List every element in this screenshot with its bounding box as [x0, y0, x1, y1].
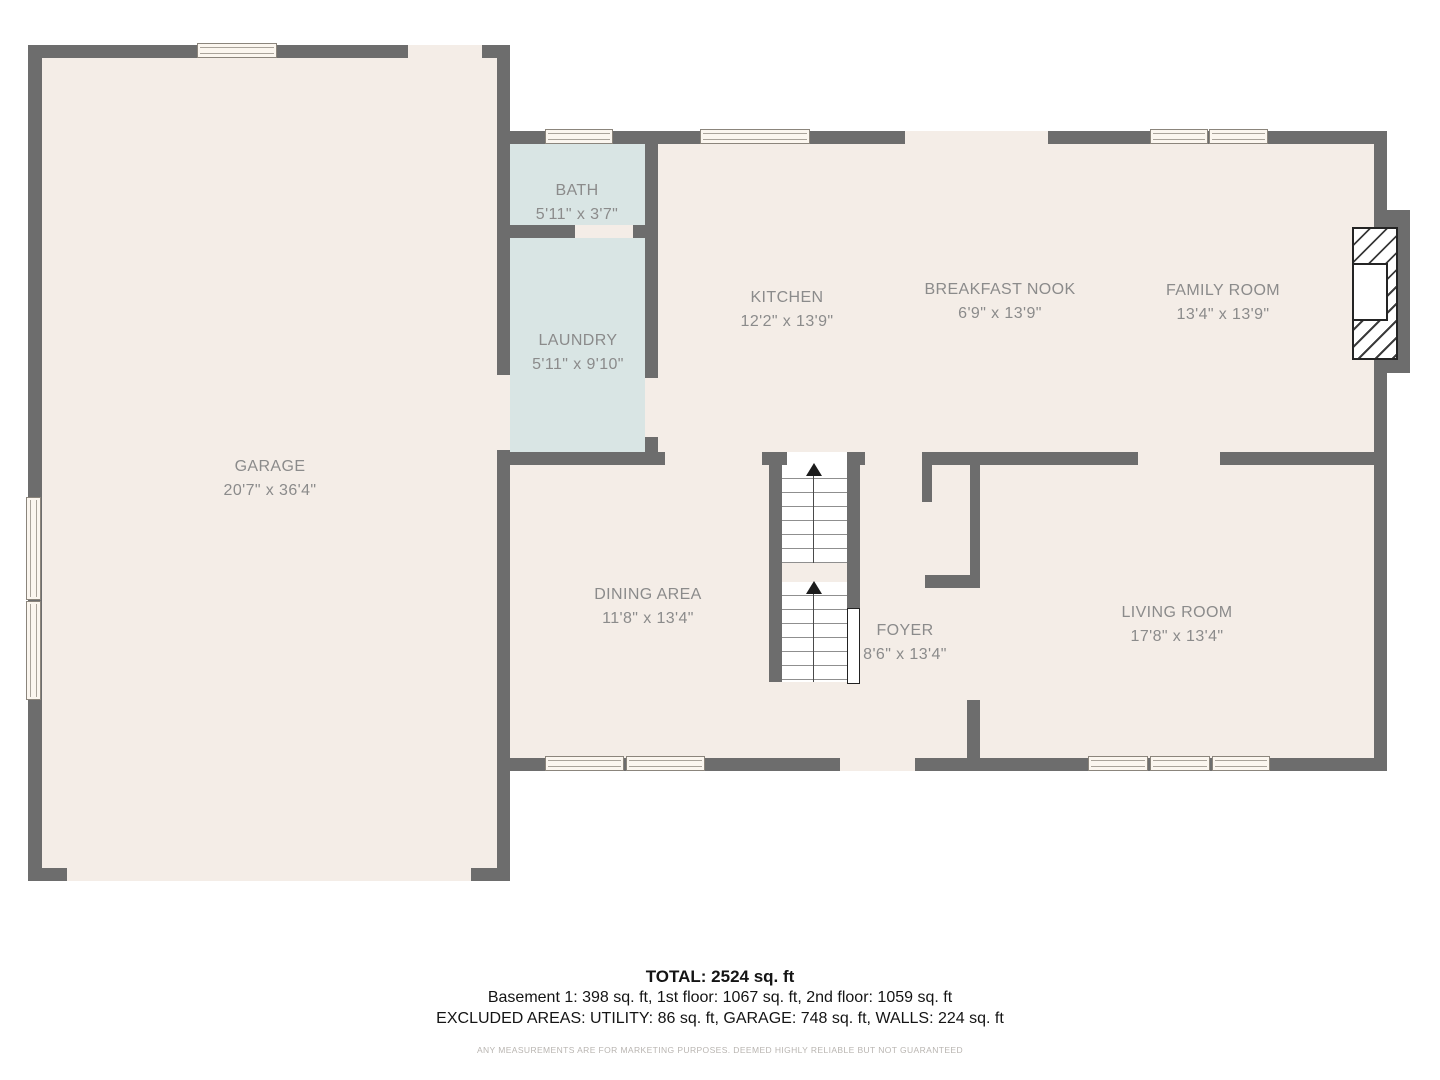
room-label-garage: GARAGE 20'7" x 36'4" — [170, 455, 370, 503]
wall — [497, 452, 665, 465]
door-opening — [645, 378, 658, 437]
window — [626, 756, 705, 771]
door-opening — [408, 45, 482, 58]
stair-wall — [847, 452, 860, 610]
room-label-bath: BATH 5'11" x 3'7" — [517, 179, 637, 227]
room-label-foyer: FOYER 8'6" x 13'4" — [835, 619, 975, 667]
wall — [1220, 452, 1374, 465]
window — [1209, 129, 1268, 144]
window — [26, 601, 41, 700]
up-arrow-icon — [806, 581, 822, 594]
room-dims: 13'4" x 13'9" — [1123, 303, 1323, 327]
room-label-dining-area: DINING AREA 11'8" x 13'4" — [548, 583, 748, 631]
room-name: BREAKFAST NOOK — [900, 278, 1100, 302]
room-dims: 6'9" x 13'9" — [900, 302, 1100, 326]
room-dims: 8'6" x 13'4" — [835, 643, 975, 667]
floor-areas: Basement 1: 398 sq. ft, 1st floor: 1067 … — [0, 987, 1440, 1008]
room-name: GARAGE — [170, 455, 370, 479]
area-summary: TOTAL: 2524 sq. ft Basement 1: 398 sq. f… — [0, 966, 1440, 1055]
room-name: FOYER — [835, 619, 975, 643]
firebox — [1352, 263, 1388, 321]
stair-direction-line — [813, 592, 814, 682]
floor-plan: GARAGE 20'7" x 36'4" BATH 5'11" x 3'7" L… — [0, 0, 1440, 1080]
door-opening — [497, 375, 510, 450]
closet-wall — [922, 452, 932, 502]
room-label-breakfast-nook: BREAKFAST NOOK 6'9" x 13'9" — [900, 278, 1100, 326]
wall — [967, 700, 980, 758]
window — [1150, 129, 1208, 144]
room-dims: 5'11" x 3'7" — [517, 203, 637, 227]
room-label-kitchen: KITCHEN 12'2" x 13'9" — [707, 286, 867, 334]
room-dims: 11'8" x 13'4" — [548, 607, 748, 631]
room-name: LIVING ROOM — [1077, 601, 1277, 625]
window — [1088, 756, 1148, 771]
room-name: KITCHEN — [707, 286, 867, 310]
slider-opening — [905, 131, 1048, 144]
room-label-living-room: LIVING ROOM 17'8" x 13'4" — [1077, 601, 1277, 649]
room-label-family-room: FAMILY ROOM 13'4" x 13'9" — [1123, 279, 1323, 327]
wall — [28, 45, 42, 881]
stair-flight-upper — [782, 465, 847, 563]
stair-landing — [782, 563, 847, 582]
stair-direction-line — [813, 474, 814, 563]
room-dims: 5'11" x 9'10" — [508, 353, 648, 377]
room-name: LAUNDRY — [508, 329, 648, 353]
window — [545, 756, 624, 771]
front-door-opening — [840, 758, 915, 771]
room-label-laundry: LAUNDRY 5'11" x 9'10" — [508, 329, 648, 377]
room-dims: 20'7" x 36'4" — [170, 479, 370, 503]
room-dims: 12'2" x 13'9" — [707, 310, 867, 334]
window — [545, 129, 613, 144]
garage-door-opening — [67, 868, 471, 881]
room-dims: 17'8" x 13'4" — [1077, 625, 1277, 649]
window — [700, 129, 810, 144]
room-name: BATH — [517, 179, 637, 203]
window — [1212, 756, 1270, 771]
wall — [922, 452, 1138, 465]
excluded-areas: EXCLUDED AREAS: UTILITY: 86 sq. ft, GARA… — [0, 1008, 1440, 1029]
window — [26, 497, 41, 600]
window — [197, 43, 277, 58]
window — [1150, 756, 1210, 771]
closet-wall — [970, 452, 980, 588]
room-name: DINING AREA — [548, 583, 748, 607]
room-name: FAMILY ROOM — [1123, 279, 1323, 303]
up-arrow-icon — [806, 463, 822, 476]
disclaimer: ANY MEASUREMENTS ARE FOR MARKETING PURPO… — [0, 1045, 1440, 1055]
total-area: TOTAL: 2524 sq. ft — [0, 966, 1440, 987]
stair-wall — [769, 452, 782, 682]
closet-wall — [925, 575, 980, 588]
